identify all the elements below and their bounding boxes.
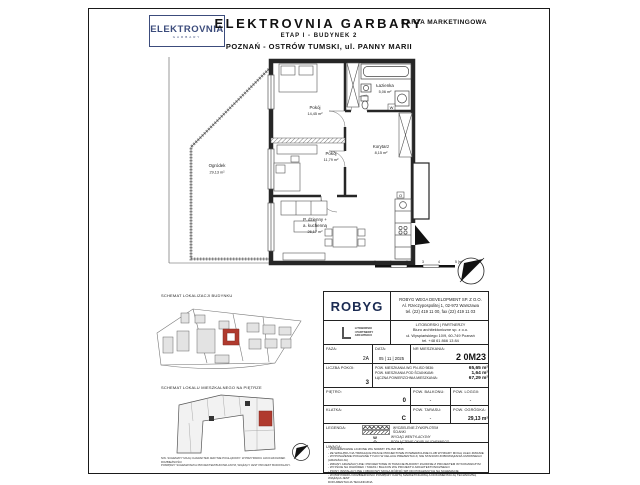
architect-office: Biuro architektoniczne sp. z o.o. bbox=[406, 327, 475, 332]
legend-label: LEGENDA: bbox=[326, 426, 346, 430]
pow-laczna-label: ŁĄCZNA POWIERZCHNIA MIESZKANIA: bbox=[375, 376, 438, 380]
liczba-pokoi-cell: LICZBA POKOI: 3 bbox=[324, 364, 372, 387]
garden-label: Ogródek bbox=[209, 163, 227, 168]
plot-boundary bbox=[169, 57, 271, 263]
floor-plan: Ogródek 29,13 m² bbox=[89, 51, 549, 295]
legend-text: WYCIĄG WENTYLACYJNY bbox=[391, 435, 431, 439]
bed-bedroom1 bbox=[279, 64, 317, 92]
schematic-note-line2: POMIĘDZY SCHEMATAMI A PROJEKTEM BUDOWLAN… bbox=[161, 464, 291, 468]
balkon-cell: POW. BALKONU: - bbox=[410, 388, 450, 405]
living-label2: a. kuchenną bbox=[303, 223, 327, 228]
nr-mieszkania-value: 2 0M23 bbox=[456, 352, 486, 362]
pietro-cell: PIĘTRO: 0 bbox=[324, 388, 410, 405]
marketing-card: ELEKTROVNIA GARBARY ELEKTROVNIA GARBARY … bbox=[88, 8, 550, 474]
bathroom-label: Łazienka bbox=[376, 83, 394, 88]
faza-value: 2A bbox=[363, 356, 369, 362]
uwaga-line: DOKUMENTACJA TECHNICZNA bbox=[328, 481, 486, 485]
balkon-value: - bbox=[411, 398, 450, 404]
phase-date-number-row: FAZA: 2A DATA: 05 | 11 | 2025 NR MIESZKA… bbox=[324, 344, 488, 363]
rooms-areas-row: LICZBA POKOI: 3 POW. MIESZKANIA WG PN-IS… bbox=[324, 363, 488, 387]
developer-row: ROBYG ROBYG WEGA DEVELOPMENT SP. Z O.O. … bbox=[324, 292, 488, 320]
north-arrow-icon bbox=[458, 258, 484, 284]
architect-logo-cell: LITOBORSKI I PARTNERZY ARCHITEKCI bbox=[324, 321, 390, 344]
uwaga-lines: - POWIERZCHNIE LICZONE WG NORMY PN-ISO 9… bbox=[328, 448, 486, 485]
floor-schematic-label: SCHEMAT LOKALU MIESZKALNEGO NA PIĘTRZE bbox=[161, 385, 262, 390]
living-area: 26,17 m² bbox=[308, 230, 324, 234]
scale-tick: 4 bbox=[438, 260, 440, 264]
schematic-note: NIN. SCHEMATY MAJĄ CHARAKTER JEDYNIE POG… bbox=[161, 457, 291, 468]
architect-phone: tel. +48 61 866 13 84 bbox=[406, 338, 475, 343]
bedroom1-area: 14,45 m² bbox=[308, 112, 324, 116]
taras-label: POW. TARASU: bbox=[413, 408, 441, 412]
highlighted-building bbox=[223, 329, 239, 345]
entrance-door bbox=[410, 163, 431, 245]
developer-info-cell: ROBYG WEGA DEVELOPMENT SP. Z O.O. Al. Rz… bbox=[390, 292, 490, 320]
page-subtitle: ETAP I - BUDYNEK 2 bbox=[89, 33, 549, 39]
architect-row: LITOBORSKI I PARTNERZY ARCHITEKCI LITOBO… bbox=[324, 320, 488, 344]
hood-symbol: O bbox=[399, 193, 402, 198]
building-schematic-label: SCHEMAT LOKALIZACJI BUDYNKU bbox=[161, 293, 233, 298]
litoborski-logo-text: LITOBORSKI I PARTNERZY ARCHITEKCI bbox=[355, 327, 373, 337]
logo-word: ARCHITEKCI bbox=[355, 334, 373, 337]
floor-location-schematic bbox=[151, 391, 307, 455]
corridor-label: Korytarz bbox=[373, 144, 389, 149]
loggia-label: POW. LOGGII: bbox=[453, 390, 479, 394]
klatka-label: KLATKA: bbox=[326, 408, 342, 412]
faza-label: FAZA: bbox=[326, 347, 337, 351]
architect-info-cell: LITOBORSKI | PARTNERZY Biuro architekton… bbox=[390, 321, 490, 344]
taras-value: - bbox=[411, 416, 450, 422]
window-icon bbox=[268, 75, 274, 251]
scale-tick: 2 bbox=[406, 260, 408, 264]
areas-cell: POW. MIESZKANIA WG PN-ISO 9836: 65,65 m²… bbox=[372, 364, 490, 387]
corridor-area: 8,15 m² bbox=[375, 151, 389, 155]
kitchen-counter bbox=[395, 199, 411, 259]
bedroom1-label: Pokój bbox=[310, 105, 321, 110]
legend-text: ŚCIANKI bbox=[393, 430, 406, 434]
highlighted-unit bbox=[259, 411, 272, 426]
pow-mieszkania-label: POW. MIESZKANIA WG PN-ISO 9836: bbox=[375, 366, 434, 370]
architect-address: ul. Wyspiańskiego 10/9, 60-749 Poznań bbox=[406, 333, 475, 338]
legend-text: WYDZIELENIE ŻYWOPŁOTEM bbox=[393, 426, 438, 430]
liczba-pokoi-label: LICZBA POKOI: bbox=[326, 366, 355, 370]
site-plan-schematic bbox=[151, 301, 307, 381]
data-label: DATA: bbox=[375, 347, 386, 351]
uwaga-row: UWAGA: - POWIERZCHNIE LICZONE WG NORMY P… bbox=[324, 442, 488, 473]
robyg-logo: ROBYG bbox=[331, 299, 384, 314]
area-line: ŁĄCZNA POWIERZCHNIA MIESZKANIA: 67,29 m² bbox=[373, 376, 490, 381]
north-arrow-small-icon bbox=[289, 440, 313, 464]
architect-info: LITOBORSKI | PARTNERZY Biuro architekton… bbox=[406, 322, 475, 343]
pietro-label: PIĘTRO: bbox=[326, 390, 342, 394]
loggia-value: - bbox=[451, 398, 490, 404]
unit-info-table: ROBYG ROBYG WEGA DEVELOPMENT SP. Z O.O. … bbox=[323, 291, 489, 473]
developer-logo-cell: ROBYG bbox=[324, 292, 390, 320]
faza-cell: FAZA: 2A bbox=[324, 345, 372, 363]
nr-mieszkania-cell: NR MIESZKANIA: 2 0M23 bbox=[410, 345, 490, 363]
stair-core bbox=[209, 416, 214, 421]
pow-laczna-value: 67,29 m² bbox=[469, 376, 488, 381]
klatka-value: C bbox=[402, 416, 406, 422]
doc-type-label: KARTA MARKETINGOWA bbox=[401, 19, 487, 26]
liczba-pokoi-value: 3 bbox=[366, 380, 369, 386]
data-cell: DATA: 05 | 11 | 2025 bbox=[372, 345, 410, 363]
litoborski-logo-icon bbox=[341, 326, 353, 340]
balkon-label: POW. BALKONU: bbox=[413, 390, 444, 394]
stair-core bbox=[245, 401, 250, 406]
bathroom-area: 5,06 m² bbox=[379, 90, 393, 94]
garden-area: Ogródek 29,13 m² bbox=[191, 67, 271, 259]
pow-scianki-label: POW. MIESZKANIA POD ŚCIANKAMI: bbox=[375, 371, 434, 375]
bedroom2-label: Pokój bbox=[326, 151, 337, 156]
garden-area-label: 29,13 m² bbox=[210, 171, 226, 175]
page-location: POZNAŃ - OSTRÓW TUMSKI, ul. PANNY MARII bbox=[89, 42, 549, 51]
nr-mieszkania-label: NR MIESZKANIA: bbox=[413, 347, 445, 351]
floor-balcony-row: PIĘTRO: 0 POW. BALKONU: - POW. LOGGII: - bbox=[324, 387, 488, 405]
ogrodek-value: 29,13 m² bbox=[468, 416, 488, 422]
data-value: 05 | 11 | 2025 bbox=[373, 356, 410, 361]
living-label1: P. dzienny + bbox=[303, 217, 327, 222]
scale-tick: 1 bbox=[390, 260, 392, 264]
loggia-cell: POW. LOGGII: - bbox=[450, 388, 490, 405]
developer-info: ROBYG WEGA DEVELOPMENT SP. Z O.O. Al. Rz… bbox=[399, 297, 482, 314]
scale-tick: 0 bbox=[374, 260, 376, 264]
pietro-value: 0 bbox=[403, 398, 406, 404]
legend-row: LEGENDA: WYDZIELENIE ŻYWOPŁOTEM ŚCIANKI … bbox=[324, 423, 488, 442]
taras-cell: POW. TARASU: - bbox=[410, 406, 450, 423]
staircase-terrace-row: KLATKA: C POW. TARASU: - POW. OGRÓDKA: 2… bbox=[324, 405, 488, 423]
bedroom2-area: 11,79 m² bbox=[324, 158, 339, 162]
ogrodek-cell: POW. OGRÓDKA: 29,13 m² bbox=[450, 406, 490, 423]
partition-wall bbox=[271, 138, 345, 143]
vent-symbol: W bbox=[390, 105, 394, 110]
klatka-cell: KLATKA: C bbox=[324, 406, 410, 423]
developer-phone: tel. (22) 419 11 00, fax (22) 419 11 03 bbox=[399, 309, 482, 315]
developer-address: Al. Rzeczypospolitej 1, 02-972 Warszawa bbox=[399, 303, 482, 309]
scale-tick: 3 bbox=[422, 260, 424, 264]
ogrodek-label: POW. OGRÓDKA: bbox=[453, 408, 486, 412]
